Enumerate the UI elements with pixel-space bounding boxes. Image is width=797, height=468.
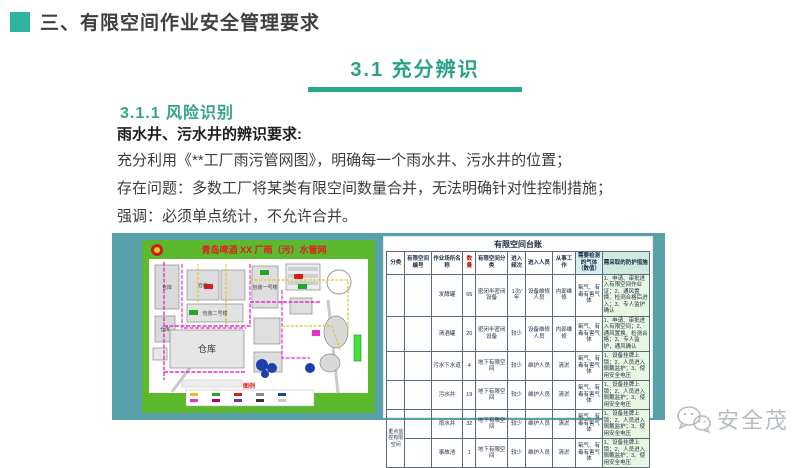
ledger-cell-measures: 1、设备挂牌上锁；2、人员进入佩戴监护；3、使用安全电压 <box>602 410 649 439</box>
ledger-cell-gas: 氧气、有毒有害气体 <box>576 352 602 381</box>
ledger-cell-type: 地下有限空间 <box>476 410 508 439</box>
ledger-cell-code <box>405 274 431 316</box>
ledger-cell-work: 清淤 <box>552 381 576 410</box>
ledger-column-header: 有限空间分类 <box>476 252 508 275</box>
map-tag-green <box>298 284 307 289</box>
ledger-cell-work: 清淤 <box>552 352 576 381</box>
map-building <box>153 348 167 360</box>
map-tag-green <box>260 270 269 275</box>
ledger-title: 有限空间台账 <box>386 239 650 250</box>
map-building-detail <box>288 267 318 271</box>
ledger-row: 事故池1地下有限空间较少维护人员清淤氧气、有毒有害气体1、设备挂牌上锁；2、人员… <box>387 439 650 468</box>
title-bullet-square <box>10 12 30 32</box>
ledger-cell-work: 清淤 <box>552 410 576 439</box>
map-green-bar <box>354 335 361 361</box>
ledger-cell-code <box>405 381 431 410</box>
map-building-label-big: 仓库 <box>198 343 216 354</box>
map-tank <box>305 363 315 373</box>
body-text: 充分利用《**工厂雨污管网图》，明确每一个雨水井、污水井的位置； 存在问题：多数… <box>117 147 612 231</box>
map-tag-red <box>294 274 303 279</box>
ledger-cell-qty: 4 <box>463 352 476 381</box>
figure-panel: 青岛啤酒 XX 厂雨（污）水管网 <box>112 233 665 420</box>
ledger-column-header: 进入人员 <box>526 252 552 275</box>
ledger-row: 污水下水道4地下有限空间较少维护人员清淤氧气、有毒有害气体1、设备挂牌上锁；2、… <box>387 352 650 381</box>
ledger-cell-work: 内部维修 <box>552 316 576 352</box>
ledger-body: 发酵罐65密闭半密闭设备1次/年设备维修人员内部维修氧气、有毒有害气体1、申请、… <box>387 274 650 468</box>
map-tank <box>267 363 277 373</box>
ledger-row: 清酒罐20密闭半密闭设备较少设备维修人员内部维修氧气、有毒有害气体1、申请、审批… <box>387 316 650 352</box>
subsection-heading: 3.1.1 风险识别 <box>120 99 234 123</box>
map-building-label: 仓库 <box>198 282 208 289</box>
body-line-2: 存在问题：多数工厂将某类有限空间数量合并，无法明确针对性控制措施； <box>117 175 612 203</box>
ledger-cell-qty: 32 <box>463 410 476 439</box>
ledger-row: 发酵罐65密闭半密闭设备1次/年设备维修人员内部维修氧气、有毒有害气体1、申请、… <box>387 274 650 316</box>
ledger-cell-category <box>387 381 405 410</box>
map-svg: 青岛啤酒 XX 厂雨（污）水管网 <box>142 240 375 413</box>
ledger-cell-people: 维护人员 <box>526 410 552 439</box>
map-building <box>290 298 312 314</box>
ledger-cell-type: 地下有限空间 <box>476 352 508 381</box>
map-tank <box>261 370 269 378</box>
map-title: 青岛啤酒 XX 厂雨（污）水管网 <box>201 244 326 255</box>
page-title: 三、有限空间作业安全管理要求 <box>40 8 320 35</box>
ledger-column-header: 有限空间编号 <box>405 252 431 275</box>
map-building-label: 仓库 <box>162 284 172 291</box>
ledger-cell-type: 地下有限空间 <box>476 381 508 410</box>
ledger-cell-freq: 较少 <box>507 316 525 352</box>
map-building <box>254 318 280 344</box>
map-building <box>221 270 245 300</box>
ledger-cell-code <box>405 439 431 468</box>
ledger-cell-code <box>405 410 431 439</box>
map-tag-magenta <box>312 330 320 336</box>
header: 三、有限空间作业安全管理要求 <box>10 8 320 35</box>
ledger-group-label: 重点监控有限空间 <box>387 410 405 468</box>
pipe-network-map-image: 青岛啤酒 XX 厂雨（污）水管网 <box>142 240 375 413</box>
legend-swatch <box>278 393 286 396</box>
legend-swatch <box>278 399 286 402</box>
ledger-cell-measures: 1、申请、审批进入有限空间作业证；2、通风置换、检测合格后进入；3、专人监护确认 <box>602 274 649 316</box>
ledger-cell-measures: 1、设备挂牌上锁；2、人员进入佩戴监护；3、使用安全电压 <box>602 381 649 410</box>
ledger-cell-measures: 1、设备挂牌上锁；2、人员进入佩戴监护；3、使用安全电压 <box>602 352 649 381</box>
map-building-label: 包装一号楼 <box>252 284 277 291</box>
ledger-column-header: 分类 <box>387 252 405 275</box>
legend-swatch <box>190 399 198 402</box>
body-line-1: 充分利用《**工厂雨污管网图》，明确每一个雨水井、污水井的位置； <box>117 147 612 175</box>
map-logo-inner <box>154 247 160 253</box>
ledger-cell-qty: 19 <box>463 381 476 410</box>
ledger-cell-code <box>405 352 431 381</box>
ledger-cell-type: 地下有限空间 <box>476 439 508 468</box>
lead-text: 雨水井、污水井的辨识要求: <box>117 123 302 144</box>
ledger-table: 分类有限空间编号作业场所名称数量有限空间分类进入频次进入人员从事工作需要检测的气… <box>386 251 650 468</box>
ledger-cell-gas: 氧气、有毒有害气体 <box>576 381 602 410</box>
ledger-cell-gas: 氧气、有毒有害气体 <box>576 439 602 468</box>
map-road-3 <box>182 380 242 387</box>
ledger-cell-people: 维护人员 <box>526 439 552 468</box>
ledger-cell-qty: 20 <box>463 316 476 352</box>
ledger-cell-qty: 1 <box>463 439 476 468</box>
ledger-cell-people: 设备维修人员 <box>526 316 552 352</box>
ledger-column-header: 数量 <box>463 252 476 275</box>
ledger-column-header: 进入频次 <box>507 252 525 275</box>
ledger-cell-name: 雨水井 <box>431 410 463 439</box>
map-legend-box <box>186 390 314 406</box>
confined-space-ledger-image: 有限空间台账 分类有限空间编号作业场所名称数量有限空间分类进入频次进入人员从事工… <box>384 237 652 417</box>
ledger-cell-freq: 较少 <box>507 439 525 468</box>
section-heading: 3.1 充分辨识 <box>308 53 522 92</box>
ledger-cell-type: 密闭半密闭设备 <box>476 316 508 352</box>
ledger-cell-gas: 氧气、有毒有害气体 <box>576 274 602 316</box>
ledger-cell-freq: 较少 <box>507 410 525 439</box>
ledger-cell-people: 维护人员 <box>526 352 552 381</box>
ledger-cell-freq: 1次/年 <box>507 274 525 316</box>
ledger-cell-qty: 65 <box>463 274 476 316</box>
ledger-row: 重点监控有限空间雨水井32地下有限空间较少维护人员清淤氧气、有毒有害气体1、设备… <box>387 410 650 439</box>
map-legend-title: 图例 <box>243 382 255 390</box>
ledger-cell-measures: 1、申请、审批进入有限空间；2、通风置换、检测合格；3、专人监护，通风确认 <box>602 316 649 352</box>
watermark-label: 安全茂 <box>717 403 789 435</box>
legend-swatch <box>190 393 198 396</box>
ledger-cell-code <box>405 316 431 352</box>
ledger-row: 污水井19地下有限空间较少维护人员清淤氧气、有毒有害气体1、设备挂牌上锁；2、人… <box>387 381 650 410</box>
ledger-cell-work: 清淤 <box>552 439 576 468</box>
ledger-cell-type: 密闭半密闭设备 <box>476 274 508 316</box>
ledger-column-header: 需采取的防护措施 <box>602 252 649 275</box>
map-tank <box>256 359 268 371</box>
ledger-cell-freq: 较少 <box>507 381 525 410</box>
ledger-column-header: 从事工作 <box>552 252 576 275</box>
wechat-icon <box>677 405 711 433</box>
ledger-cell-work: 内部维修 <box>552 274 576 316</box>
ledger-cell-freq: 较少 <box>507 352 525 381</box>
ledger-column-header: 作业场所名称 <box>431 252 463 275</box>
ledger-cell-gas: 氧气、有毒有害气体 <box>576 410 602 439</box>
legend-swatch <box>256 393 264 396</box>
ledger-cell-name: 污水井 <box>431 381 463 410</box>
map-building-label: 仓库 <box>160 326 170 333</box>
ledger-cell-category <box>387 274 405 316</box>
map-tag-green <box>189 310 198 315</box>
body-line-3: 强调：必须单点统计，不允许合并。 <box>117 203 612 231</box>
map-pond <box>320 354 340 372</box>
legend-swatch <box>234 393 242 396</box>
ledger-cell-name: 事故池 <box>431 439 463 468</box>
ledger-cell-name: 污水下水道 <box>431 352 463 381</box>
legend-swatch <box>212 399 220 402</box>
legend-swatch <box>234 399 242 402</box>
ledger-cell-people: 维护人员 <box>526 381 552 410</box>
ledger-cell-gas: 氧气、有毒有害气体 <box>576 316 602 352</box>
map-pond <box>324 316 348 348</box>
ledger-column-header: 需要检测的气体（数值） <box>576 252 602 275</box>
legend-swatch <box>256 399 264 402</box>
ledger-cell-name: 清酒罐 <box>431 316 463 352</box>
ledger-cell-people: 设备维修人员 <box>526 274 552 316</box>
ledger-cell-name: 发酵罐 <box>431 274 463 316</box>
ledger-header-row: 分类有限空间编号作业场所名称数量有限空间分类进入频次进入人员从事工作需要检测的气… <box>387 252 650 275</box>
ledger-cell-category <box>387 316 405 352</box>
ledger-cell-category <box>387 352 405 381</box>
slide: 三、有限空间作业安全管理要求 3.1 充分辨识 3.1.1 风险识别 雨水井、污… <box>0 0 797 441</box>
watermark: 安全茂 <box>677 403 789 435</box>
map-building-label: 包装二号楼 <box>202 310 227 317</box>
legend-swatch <box>212 393 220 396</box>
ledger-cell-measures: 1、设备挂牌上锁；2、人员进入佩戴监护；3、使用安全电压 <box>602 439 649 468</box>
